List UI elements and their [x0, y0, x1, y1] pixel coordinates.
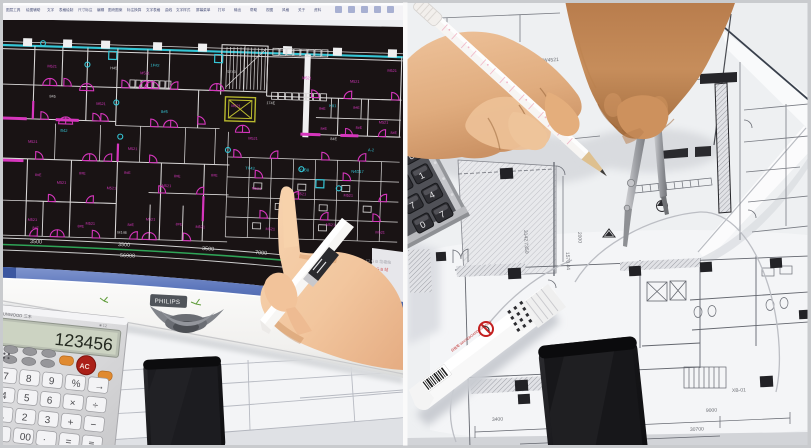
svg-text:5743: 5743 — [227, 70, 236, 74]
svg-text:8#E: 8#E — [319, 107, 326, 111]
svg-text:N4D17: N4D17 — [351, 169, 364, 174]
svg-text:30700: 30700 — [690, 426, 704, 433]
svg-text:8#E: 8#E — [79, 171, 86, 175]
svg-text:M521: M521 — [252, 187, 262, 191]
svg-text:3500: 3500 — [202, 246, 214, 253]
svg-text:M521: M521 — [47, 64, 57, 68]
svg-text:8#E: 8#E — [321, 127, 328, 131]
svg-text:M521: M521 — [265, 227, 275, 231]
svg-text:1570.44: 1570.44 — [564, 252, 571, 271]
svg-text:帮助: 帮助 — [250, 7, 258, 12]
svg-text:→: → — [94, 381, 105, 393]
svg-text:屏幕菜单: 屏幕菜单 — [196, 7, 211, 12]
svg-text:M521: M521 — [387, 69, 397, 73]
svg-text:8#E: 8#E — [35, 173, 42, 177]
svg-text:绘图辅助: 绘图辅助 — [26, 7, 41, 12]
svg-text:M521: M521 — [248, 137, 258, 141]
svg-text:8#E: 8#E — [353, 106, 360, 110]
svg-text:M521: M521 — [344, 193, 354, 197]
svg-text:M521: M521 — [146, 217, 156, 221]
svg-text:H45: H45 — [110, 66, 117, 70]
svg-text:M521: M521 — [107, 186, 117, 190]
svg-text:图层工具: 图层工具 — [6, 7, 21, 12]
svg-text:8#E: 8#E — [124, 171, 131, 175]
svg-text:3500: 3500 — [30, 239, 42, 245]
svg-text:3400: 3400 — [492, 417, 504, 423]
svg-text:资料: 资料 — [314, 7, 322, 12]
svg-text:M521: M521 — [28, 140, 38, 144]
svg-text:标注换算: 标注换算 — [127, 7, 142, 12]
svg-text:174E: 174E — [266, 101, 275, 105]
svg-text:M521: M521 — [57, 181, 67, 185]
svg-text:M521: M521 — [350, 80, 360, 84]
svg-text:■ 12: ■ 12 — [99, 323, 107, 328]
svg-text:打印: 打印 — [218, 7, 226, 12]
svg-text:尺寸标注: 尺寸标注 — [78, 7, 93, 12]
svg-text:M521: M521 — [375, 230, 385, 234]
svg-text:视图: 视图 — [266, 7, 274, 12]
svg-text:8#5: 8#5 — [161, 109, 169, 114]
svg-text:3142.7350: 3142.7350 — [522, 230, 529, 254]
svg-text:K91: K91 — [329, 103, 337, 108]
svg-text:关于: 关于 — [298, 7, 306, 12]
svg-text:M521: M521 — [96, 102, 106, 106]
svg-text:%: % — [71, 378, 81, 390]
svg-text:M521: M521 — [297, 192, 307, 196]
svg-text:AC: AC — [79, 363, 90, 371]
svg-text:3500: 3500 — [118, 242, 130, 248]
svg-text:输出: 输出 — [234, 7, 242, 12]
svg-text:M521: M521 — [231, 104, 241, 108]
svg-text:8#E: 8#E — [77, 224, 84, 228]
svg-text:TF43: TF43 — [245, 165, 255, 170]
svg-text:56908: 56908 — [120, 253, 135, 260]
svg-text:1F#2: 1F#2 — [150, 63, 160, 68]
svg-text:M521: M521 — [302, 76, 312, 80]
svg-text:风格: 风格 — [282, 7, 290, 12]
svg-text:M521: M521 — [326, 223, 336, 227]
svg-text:PHILIPS: PHILIPS — [154, 298, 180, 306]
svg-text:2000: 2000 — [576, 232, 583, 244]
svg-text:文字样式: 文字样式 — [176, 7, 191, 12]
svg-text:M521: M521 — [195, 225, 205, 229]
svg-text:00: 00 — [19, 432, 32, 444]
svg-text:8#E: 8#E — [128, 223, 135, 227]
svg-text:8#E: 8#E — [356, 126, 363, 130]
svg-text:表格绘制: 表格绘制 — [59, 7, 74, 12]
svg-text:M521: M521 — [379, 121, 389, 125]
svg-text:M146: M146 — [117, 231, 127, 235]
svg-text:84E: 84E — [330, 137, 337, 141]
svg-text:M521: M521 — [128, 147, 138, 151]
svg-text:A-2: A-2 — [368, 147, 375, 152]
svg-text:845: 845 — [49, 94, 55, 98]
svg-text:文字: 文字 — [47, 7, 55, 12]
svg-text:8#E: 8#E — [211, 173, 218, 177]
svg-text:M521: M521 — [28, 218, 38, 222]
svg-text:M521: M521 — [140, 71, 150, 75]
svg-text:图块图案: 图块图案 — [108, 7, 123, 12]
svg-text:8#E: 8#E — [176, 222, 183, 226]
svg-text:8#E: 8#E — [32, 226, 39, 230]
svg-text:编辑: 编辑 — [97, 7, 105, 12]
svg-text:B42: B42 — [60, 128, 68, 133]
svg-text:8#E: 8#E — [390, 131, 397, 135]
svg-text:XB-01: XB-01 — [732, 387, 746, 394]
svg-text:曲线: 曲线 — [165, 7, 173, 12]
svg-text:M521: M521 — [86, 222, 96, 226]
svg-text:9000: 9000 — [706, 408, 718, 414]
svg-text:7000: 7000 — [255, 250, 267, 257]
svg-text:文字表格: 文字表格 — [146, 7, 161, 12]
svg-text:8#E: 8#E — [174, 174, 181, 178]
